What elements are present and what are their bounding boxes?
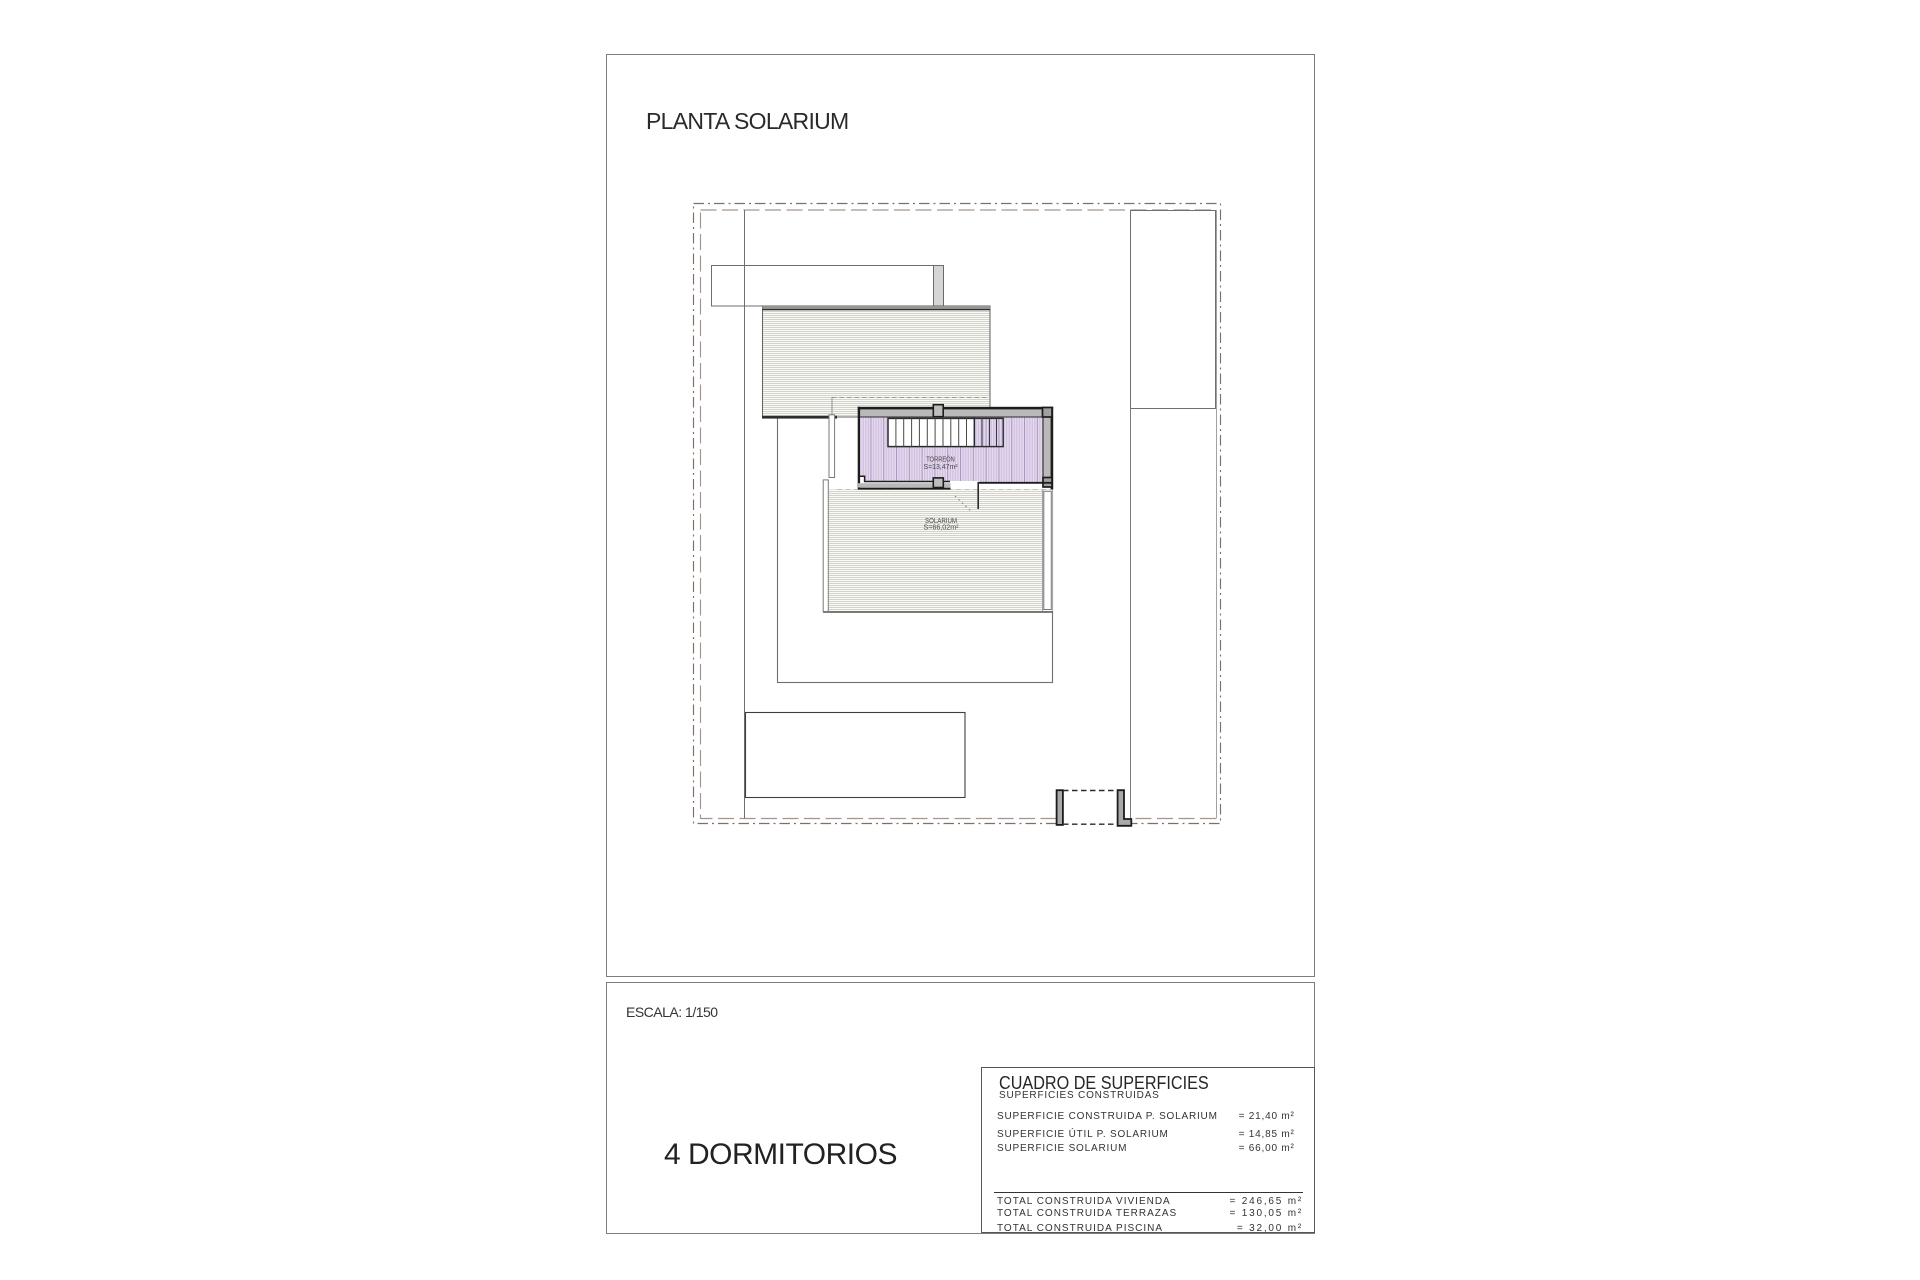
svg-text:TORREÓN: TORREÓN (926, 455, 955, 464)
svg-text:S=13,47m²: S=13,47m² (924, 464, 959, 471)
svg-text:S=66,02m²: S=66,02m² (924, 522, 960, 531)
